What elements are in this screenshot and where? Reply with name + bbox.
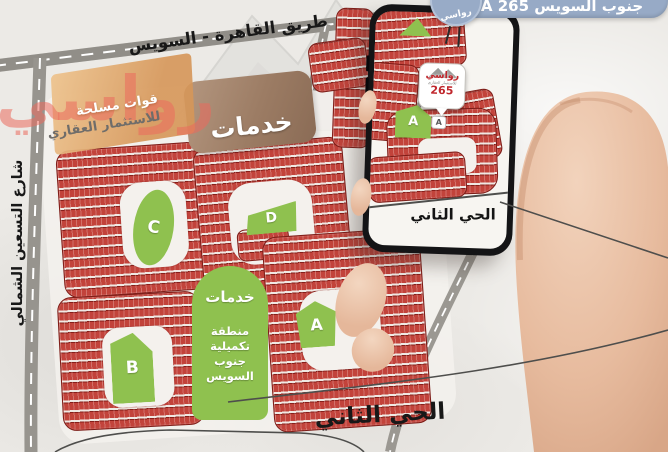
green-zone-line-1: منطقة [206,324,254,339]
central-green-title: خدمات [205,288,254,306]
plot-cluster-c: C [55,141,210,299]
district-title-pill: جنوب السويس A 265 [456,0,668,18]
pin-block-chip: A [431,116,446,130]
north-ninety-road-label: شارع التسعين الشمالي [10,148,26,338]
central-green-zone: خدمات منطقة تكميلية جنوب السويس [192,266,268,420]
screen-district-label: الحي الثاني [403,205,503,223]
green-zone-line-4: السويس [206,369,254,384]
district-boundary-upper [500,202,668,258]
brand-circle-badge-label: رواسي [439,7,472,23]
phone-volume-button [366,55,370,71]
plot-strip-entry [307,36,371,94]
block-d-label: D [265,210,278,227]
block-c-label: C [146,217,161,239]
services-brown-label: خدمات [209,107,294,144]
block-a-label: A [310,314,324,334]
pin-block-chip-label: A [435,118,442,127]
location-pin: رواسي للاستثمار العقاري 265 [418,62,467,110]
block-b-label: B [125,358,139,379]
green-zone-line-3: جنوب [206,354,254,369]
phone: A رواسي للاستثمار العقاري 265 A الحي الث… [362,3,521,256]
phone-screen: A رواسي للاستثمار العقاري 265 A الحي الث… [368,11,514,250]
hand-shape [515,91,668,452]
screen-cluster-5 [368,151,468,204]
district-title-pill-label: جنوب السويس A 265 [481,0,643,15]
poster-canvas: { "header": { "district_pill": "جنوب الس… [0,0,668,452]
pin-number: 265 [430,85,453,98]
screen-block-a-label: A [408,114,419,129]
plot-cluster-b: B [57,290,206,431]
green-zone-line-2: تكميلية [206,339,254,354]
